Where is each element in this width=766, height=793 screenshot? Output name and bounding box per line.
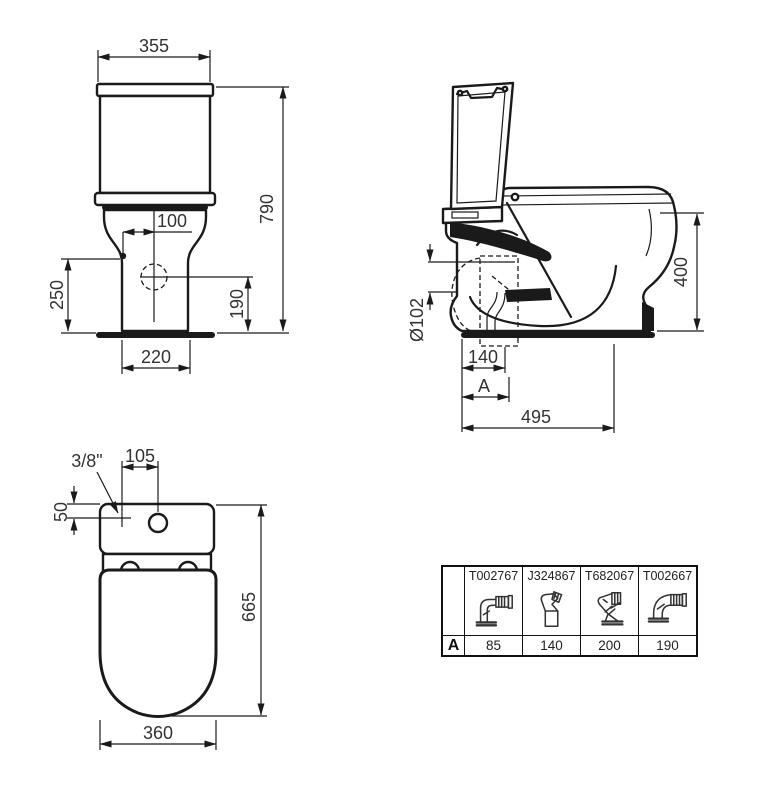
dim-variable-setout: A	[478, 376, 490, 396]
dim-outlet-diameter: Ø102	[407, 298, 427, 342]
technical-drawing-page: 355 790 100 250 190 220	[0, 0, 766, 793]
dim-outlet-height: 190	[227, 289, 247, 319]
side-view: Ø102 140 A 495 400	[407, 83, 704, 433]
connector-column: T682067	[580, 567, 638, 635]
flush-button	[149, 514, 167, 532]
dim-water-inlet: 3/8"	[71, 451, 102, 471]
dim-base-width: 220	[141, 347, 171, 367]
dim-bowl-width: 360	[143, 723, 173, 743]
angled-connector-icon	[587, 584, 633, 635]
setout-value: 200	[580, 635, 638, 655]
seat-hinge-pin	[512, 194, 518, 200]
foot-shadow	[642, 302, 654, 331]
floor-line	[96, 332, 215, 338]
dim-total-height: 790	[257, 194, 277, 224]
connector-table: T002767 J324867 T682067	[441, 565, 698, 657]
dim-total-length: 665	[239, 592, 259, 622]
front-view: 355 790 100 250 190 220	[47, 36, 289, 374]
table-row-header: A	[443, 635, 464, 655]
seat-top-outline	[100, 570, 216, 717]
cistern-base-rim	[95, 193, 215, 205]
dim-button-offset: 105	[125, 446, 155, 466]
table-corner-cell	[443, 567, 464, 635]
top-view: 3/8" 105 50 665 360	[51, 446, 267, 750]
cistern-lid	[97, 84, 213, 96]
dim-outlet-setout: 140	[468, 347, 498, 367]
setout-value: 190	[638, 635, 696, 655]
dim-inlet-offset: 100	[157, 211, 187, 231]
part-number: J324867	[528, 568, 576, 584]
part-number: T002667	[643, 568, 692, 584]
part-number: T002767	[469, 568, 518, 584]
connector-column: J324867	[522, 567, 580, 635]
setout-value: 85	[464, 635, 522, 655]
seat-front-edge	[102, 205, 208, 210]
wc-technical-drawing: 355 790 100 250 190 220	[0, 0, 766, 793]
cistern-body	[100, 96, 210, 193]
dim-total-depth: 495	[521, 407, 551, 427]
elbow-corrugated-up-connector-icon	[645, 584, 691, 635]
elbow-corrugated-connector-icon	[471, 584, 517, 635]
offset-bend-connector-icon	[529, 584, 575, 635]
dim-bowl-height: 400	[671, 257, 691, 287]
part-number: T682067	[585, 568, 634, 584]
inlet-point-dot	[120, 253, 126, 259]
bowl-section-shadow	[505, 288, 552, 302]
setout-value: 140	[522, 635, 580, 655]
floor-line	[461, 332, 655, 338]
connector-column: T002667	[638, 567, 696, 635]
dim-side-height: 250	[47, 280, 67, 310]
pedestal-outline	[104, 210, 206, 331]
dim-tank-width: 355	[139, 36, 169, 56]
dim-inlet-setback: 50	[51, 502, 71, 522]
connector-column: T002767	[464, 567, 522, 635]
